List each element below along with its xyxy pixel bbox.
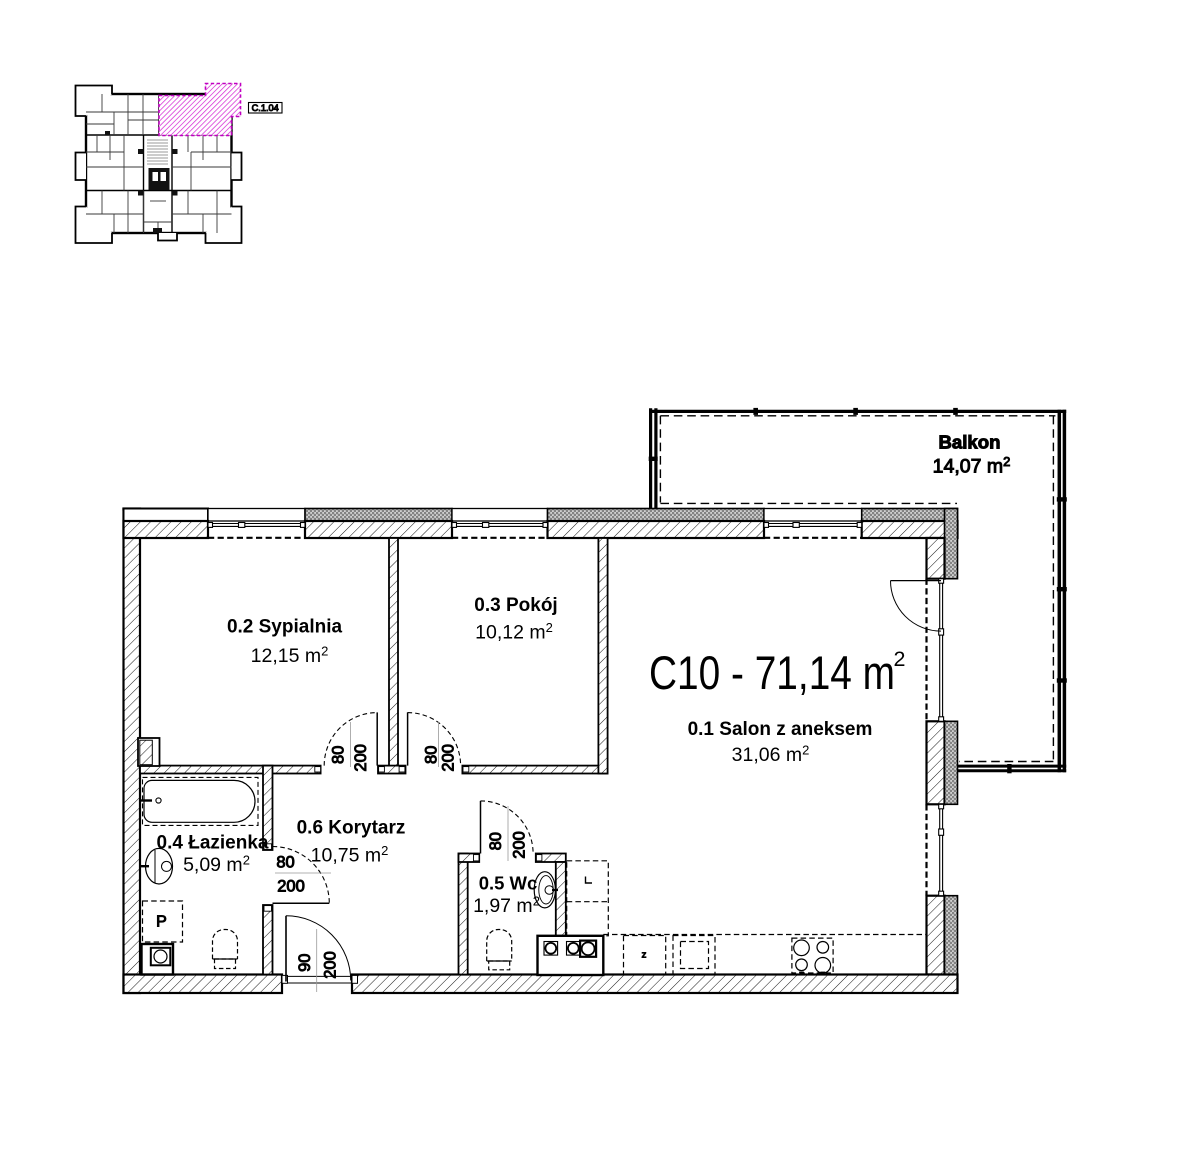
- svg-text:C.1.04: C.1.04: [252, 103, 279, 113]
- svg-text:5,09 m2: 5,09 m2: [183, 853, 250, 877]
- svg-text:80: 80: [422, 746, 440, 764]
- svg-text:0.3 Pokój: 0.3 Pokój: [474, 595, 557, 616]
- svg-text:1,97 m2: 1,97 m2: [473, 894, 540, 918]
- svg-text:80: 80: [330, 746, 348, 764]
- svg-text:0.5 Wc: 0.5 Wc: [479, 873, 538, 894]
- svg-text:14,07 m2: 14,07 m2: [933, 454, 1011, 478]
- svg-text:31,06 m2: 31,06 m2: [732, 743, 810, 767]
- svg-text:0.1 Salon z aneksem: 0.1 Salon z aneksem: [688, 719, 873, 740]
- svg-text:200: 200: [277, 877, 305, 895]
- svg-text:C10 - 71,14 m: C10 - 71,14 m: [649, 647, 895, 700]
- svg-text:80: 80: [487, 832, 505, 850]
- svg-text:z: z: [642, 950, 647, 961]
- svg-text:10,12 m2: 10,12 m2: [475, 620, 553, 644]
- svg-text:200: 200: [322, 951, 340, 979]
- svg-text:0.6 Korytarz: 0.6 Korytarz: [297, 818, 406, 839]
- svg-text:12,15 m2: 12,15 m2: [251, 644, 329, 668]
- svg-text:90: 90: [296, 954, 314, 972]
- svg-text:P: P: [156, 914, 167, 931]
- svg-text:10,75 m2: 10,75 m2: [311, 843, 389, 867]
- svg-text:0.2 Sypialnia: 0.2 Sypialnia: [227, 617, 343, 638]
- svg-text:200: 200: [352, 744, 370, 772]
- svg-text:200: 200: [440, 744, 458, 772]
- svg-text:200: 200: [511, 831, 529, 859]
- svg-text:2: 2: [894, 647, 906, 671]
- svg-text:0.4 Łazienka: 0.4 Łazienka: [157, 833, 269, 854]
- svg-text:Balkon: Balkon: [939, 431, 1001, 452]
- svg-text:80: 80: [276, 853, 294, 871]
